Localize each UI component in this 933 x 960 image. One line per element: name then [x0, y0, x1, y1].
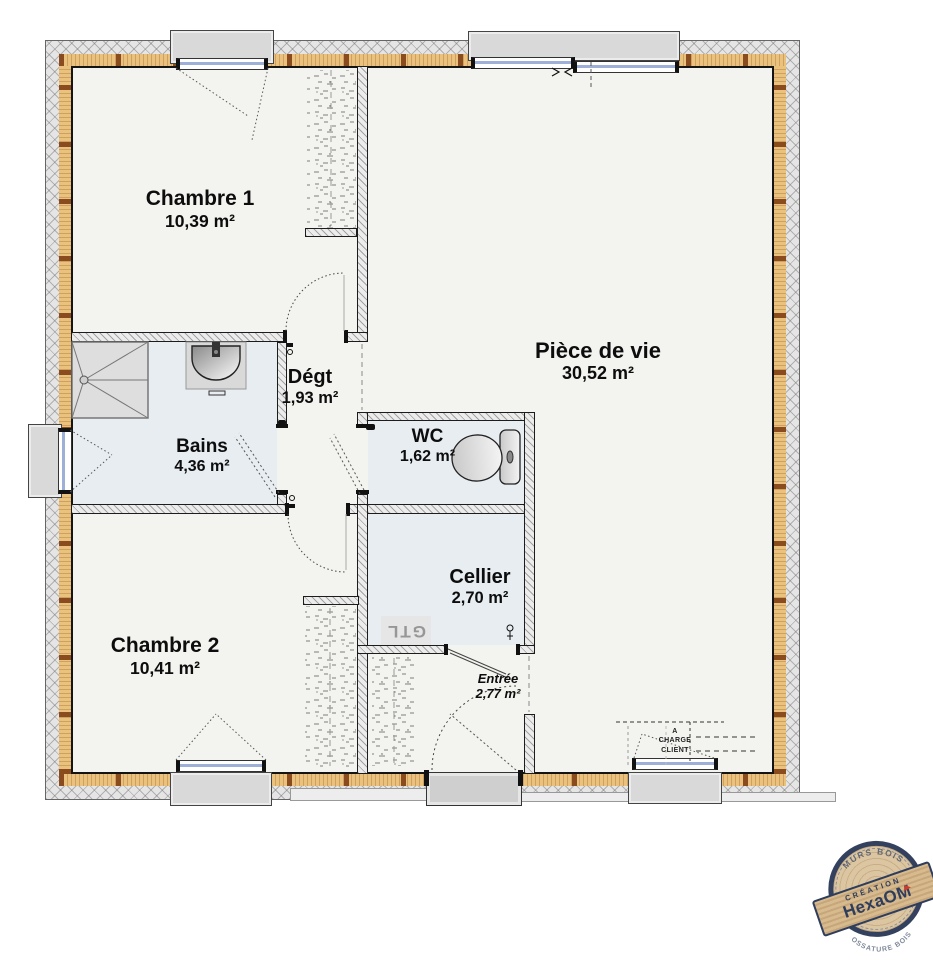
room-area: 10,41 m² [68, 658, 262, 678]
wall-entree-east-stub [524, 714, 535, 774]
room-area: 2,70 m² [418, 589, 542, 608]
label-degt: Dégt 1,93 m² [258, 366, 362, 408]
room-name: Chambre 2 [68, 634, 262, 658]
label-cellier: Cellier 2,70 m² [418, 566, 542, 608]
wall-chambre1-south-a [71, 332, 286, 342]
room-name: Cellier [418, 566, 542, 589]
kitchen-window [632, 758, 718, 770]
room-name: Dégt [258, 366, 362, 389]
wall-chambre2-north-b [346, 504, 535, 514]
label-piece-de-vie: Pièce de vie 30,52 m² [478, 338, 718, 384]
wall-cap-strip2 [303, 596, 359, 605]
label-bains: Bains 4,36 m² [128, 436, 276, 476]
room-name: WC [380, 426, 475, 448]
client-charge-line: CLIENT [640, 746, 710, 755]
bay-window-panel-right [573, 61, 679, 73]
hexaom-stamp: MURS BOIS OSSATURE BOIS CRÉATION HexaOM [814, 830, 933, 959]
wall-wc-north [357, 412, 535, 421]
room-area: 30,52 m² [478, 363, 718, 384]
gtl-label: GTL [386, 621, 426, 641]
svg-text:MURS BOIS: MURS BOIS [839, 843, 907, 871]
kitchen-window-shutterbox [628, 772, 722, 804]
label-chambre2: Chambre 2 10,41 m² [68, 634, 262, 678]
wall-chambre1-east [357, 66, 368, 342]
wall-chambre2-north-a [71, 504, 288, 514]
chambre2-window-shutterbox [170, 772, 272, 806]
room-area: 4,36 m² [128, 458, 276, 476]
bains-window-shutterbox [28, 424, 62, 498]
stamp-arc-top: MURS BOIS [839, 843, 907, 871]
wall-wc-west-a [357, 412, 368, 428]
label-entree: Entrée 2,77 m² [452, 672, 544, 702]
room-area: 10,39 m² [90, 211, 310, 231]
gtl-electrical-box: GTL [381, 616, 431, 645]
insulation-band-right [774, 66, 786, 774]
wall-chambre2-east [357, 504, 368, 774]
bains-floor [73, 342, 277, 504]
room-name: Entrée [452, 672, 544, 687]
wall-wc-cellier-east [524, 412, 535, 652]
wall-cap-strip1 [305, 228, 357, 237]
room-name: Chambre 1 [90, 187, 310, 211]
wall-cellier-south-a [357, 645, 448, 654]
stamp-arc-bottom: OSSATURE BOIS [849, 930, 915, 957]
svg-text:OSSATURE BOIS: OSSATURE BOIS [849, 930, 915, 957]
client-charge-note: A CHARGE CLIENT [640, 727, 710, 755]
room-area: 1,93 m² [258, 389, 362, 408]
chambre1-window [176, 58, 268, 70]
client-charge-line: CHARGE [640, 736, 710, 745]
wall-chambre1-south-b [344, 332, 368, 342]
room-area: 1,62 m² [380, 448, 475, 466]
wall-cellier-south-b [518, 645, 535, 654]
label-wc: WC 1,62 m² [380, 426, 475, 466]
room-name: Pièce de vie [478, 338, 718, 363]
label-chambre1: Chambre 1 10,39 m² [90, 187, 310, 231]
bay-window-panel-left [471, 57, 575, 69]
room-area: 2,77 m² [452, 687, 544, 702]
room-name: Bains [128, 436, 276, 458]
bains-window [58, 428, 72, 494]
terrace-step-left [290, 788, 430, 801]
floor-plan: Chambre 1 10,39 m² Pièce de vie 30,52 m²… [0, 0, 933, 960]
client-charge-line: A [640, 727, 710, 736]
chambre2-window [176, 760, 266, 772]
front-door-slab [426, 772, 522, 806]
